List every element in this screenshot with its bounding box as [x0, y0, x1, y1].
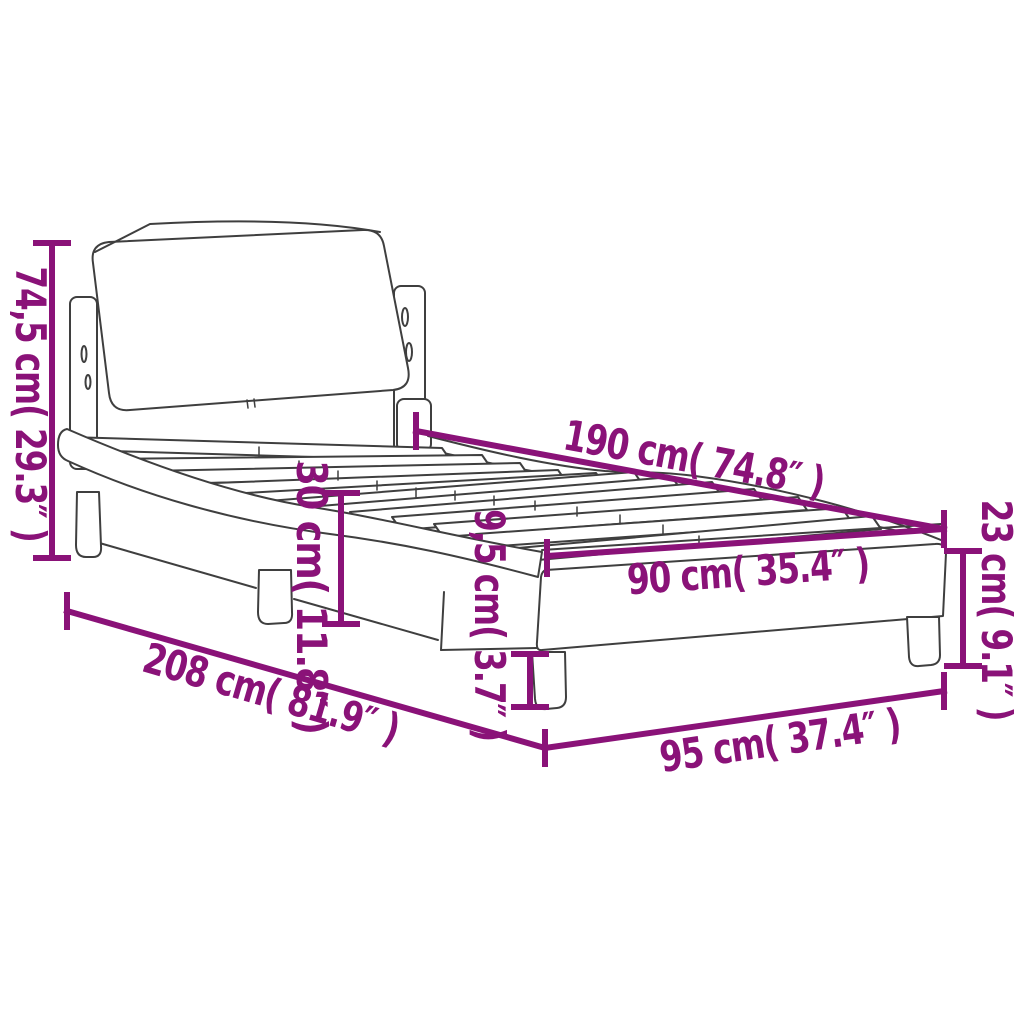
dim-label-total-height: 74,5 cm( 29.3″ ) — [9, 266, 51, 541]
headboard — [93, 221, 409, 410]
dim-label-frame-height: 23 cm( 9.1″ ) — [975, 500, 1017, 721]
leg-head-left — [76, 492, 101, 557]
leg-foot-right — [907, 617, 940, 666]
leg-foot-left — [532, 652, 566, 709]
dim-label-leg-height: 9,5 cm( 3.7″ ) — [468, 509, 510, 741]
bed-dimension-diagram: 74,5 cm( 29.3″ ) 190 cm( 74.8″ ) 30 cm( … — [0, 0, 1024, 1024]
